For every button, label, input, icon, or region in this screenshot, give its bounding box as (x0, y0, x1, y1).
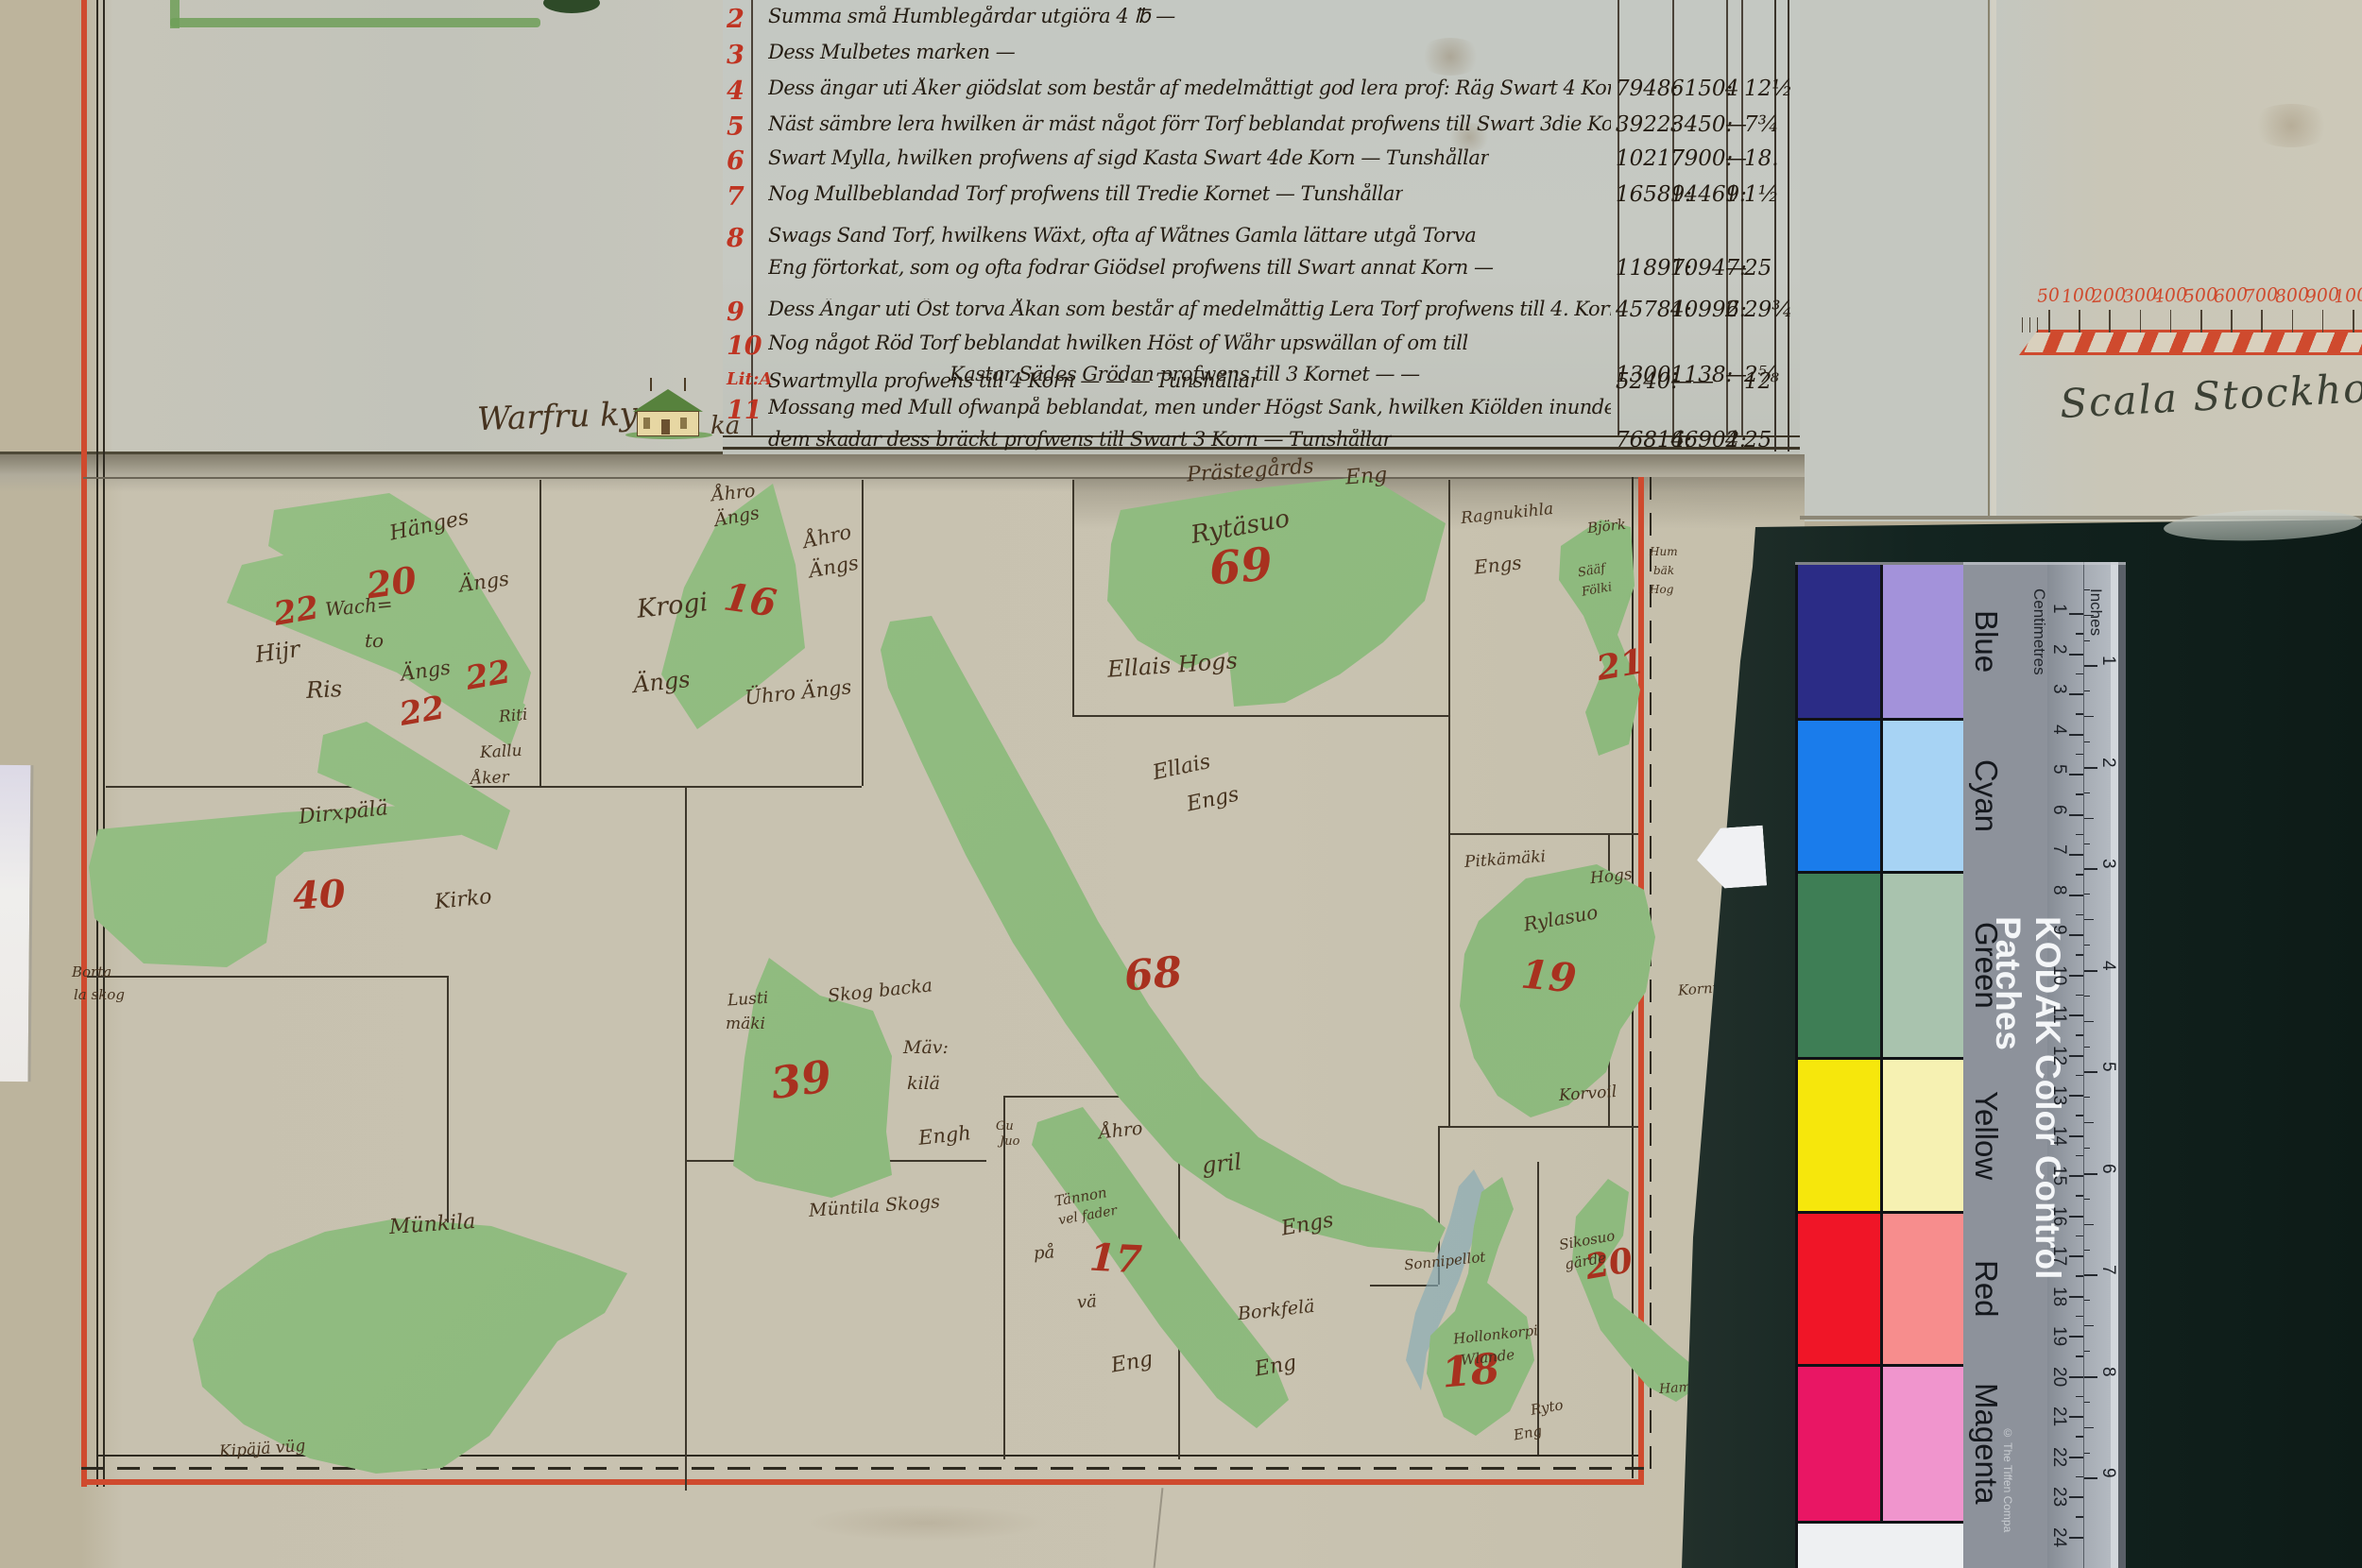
cm-number: 8 (2048, 885, 2069, 917)
color-patch-light (1883, 1367, 1963, 1521)
cm-number: 5 (2048, 764, 2069, 796)
scale-tick (2079, 310, 2080, 332)
cm-number: 4 (2048, 724, 2069, 757)
inch-sub-tick (2084, 1224, 2094, 1225)
cm-major-tick (2069, 654, 2083, 656)
cm-number: 12 (2048, 1046, 2069, 1078)
cm-minor-tick (2076, 633, 2083, 635)
inch-number: 5 (2097, 1062, 2118, 1094)
cm-number: 18 (2048, 1287, 2069, 1319)
cm-minor-tick (2076, 874, 2083, 876)
cm-major-tick (2069, 1175, 2083, 1177)
color-patch-strong (1798, 874, 1880, 1057)
scanned-historical-map: 2022222216692140396819171820HängesÄngsWa… (0, 0, 2362, 1568)
cm-major-tick (2069, 895, 2083, 896)
cm-number: 16 (2048, 1206, 2069, 1238)
cm-number: 9 (2048, 925, 2069, 957)
color-patch-label-box: Magenta (1965, 1367, 2007, 1521)
scale-tick (2292, 310, 2294, 332)
ruler-edge-shade (2118, 562, 2126, 1568)
cm-minor-tick (2076, 1355, 2083, 1357)
color-patch-strong (1798, 1214, 1880, 1364)
inch-major-tick (2084, 1071, 2097, 1073)
cm-minor-tick (2076, 995, 2083, 997)
cm-number: 23 (2048, 1487, 2069, 1519)
inch-number: 1 (2097, 656, 2118, 688)
color-patch-label: Magenta (1968, 1383, 2004, 1504)
kodak-card: Centimetres Inches KODAK Color Control P… (1795, 562, 2126, 1568)
cm-number: 2 (2048, 644, 2069, 676)
inch-number: 2 (2097, 758, 2118, 790)
cm-minor-tick (2076, 713, 2083, 715)
inch-sub-tick (2084, 1250, 2090, 1251)
cm-major-tick (2069, 1296, 2083, 1298)
cm-minor-tick (2076, 1075, 2083, 1077)
scale-tick (2048, 310, 2050, 332)
cm-number: 1 (2048, 604, 2069, 636)
cm-number: 6 (2048, 805, 2069, 837)
cm-minor-tick (2076, 1436, 2083, 1438)
cm-major-tick (2069, 934, 2083, 936)
color-patch-label: Blue (1968, 610, 2004, 673)
color-patch-label: Cyan (1968, 759, 2004, 832)
inch-sub-tick (2084, 1047, 2090, 1048)
scale-title: Scala Stockholmia (2059, 364, 2362, 424)
cm-minor-tick (2076, 1275, 2083, 1277)
cm-major-tick (2069, 693, 2083, 695)
cm-minor-tick (2076, 673, 2083, 675)
inch-major-tick (2084, 1477, 2097, 1479)
inch-number: 7 (2097, 1265, 2118, 1297)
cm-number: 22 (2048, 1447, 2069, 1479)
scale-tick (2261, 310, 2263, 332)
color-patch-strong (1798, 1367, 1880, 1521)
color-patch-strong (1798, 565, 1880, 718)
cm-number: 20 (2048, 1367, 2069, 1399)
cm-minor-tick (2076, 834, 2083, 836)
scale-bar-hatch (2019, 330, 2362, 355)
cm-number: 7 (2048, 844, 2069, 877)
cm-minor-tick (2076, 1115, 2083, 1116)
cm-minor-tick (2076, 1516, 2083, 1518)
inch-sub-tick (2084, 1300, 2090, 1301)
inch-sub-tick (2084, 818, 2094, 819)
ruler-inch-label: Inches (2086, 588, 2105, 636)
inch-sub-tick (2084, 741, 2090, 742)
inch-number: 9 (2097, 1468, 2118, 1500)
inch-major-tick (2084, 1274, 2097, 1276)
inch-sub-tick (2084, 919, 2094, 920)
scale-minor-tick (2029, 317, 2030, 332)
inch-sub-tick (2084, 690, 2090, 691)
cm-minor-tick (2076, 1476, 2083, 1478)
inch-major-tick (2084, 1376, 2097, 1378)
scale-minor-tick (2022, 317, 2023, 332)
cm-number: 10 (2048, 965, 2069, 997)
inch-sub-tick (2084, 1148, 2090, 1149)
cm-major-tick (2069, 734, 2083, 736)
cm-major-tick (2069, 1496, 2083, 1498)
cm-number: 13 (2048, 1085, 2069, 1117)
cm-major-tick (2069, 1135, 2083, 1137)
cm-number: 19 (2048, 1326, 2069, 1358)
cm-number: 17 (2048, 1246, 2069, 1278)
color-patch-light (1883, 1214, 1963, 1364)
color-patch-label: Green (1968, 922, 2004, 1009)
inch-sub-tick (2084, 1199, 2090, 1200)
cm-major-tick (2069, 1216, 2083, 1218)
inch-sub-tick (2084, 1097, 2090, 1098)
inch-sub-tick (2084, 716, 2094, 717)
color-patch-label: Yellow (1968, 1091, 2004, 1180)
color-patch-light (1883, 565, 1963, 718)
inch-sub-tick (2084, 589, 2090, 590)
inch-major-tick (2084, 868, 2097, 870)
cm-major-tick (2069, 1336, 2083, 1338)
cm-major-tick (2069, 854, 2083, 856)
color-patch-label: Red (1968, 1260, 2004, 1318)
color-patch-label-box: Yellow (1965, 1060, 2007, 1211)
scale-tick-label: 1000 (2333, 284, 2362, 308)
color-patch-label-box: Green (1965, 874, 2007, 1057)
inch-number: 3 (2097, 859, 2118, 891)
inch-sub-tick (2084, 894, 2090, 895)
cm-minor-tick (2076, 1396, 2083, 1398)
cm-major-tick (2069, 975, 2083, 977)
cm-major-tick (2069, 1457, 2083, 1458)
inch-sub-tick (2084, 1351, 2090, 1352)
cm-major-tick (2069, 1537, 2083, 1539)
color-patch-label-box: Red (1965, 1214, 2007, 1364)
scale-tick (2109, 310, 2111, 332)
inch-major-tick (2084, 1173, 2097, 1175)
ruler-center-line (2083, 562, 2084, 1568)
cm-number: 24 (2048, 1527, 2069, 1559)
cm-number: 21 (2048, 1406, 2069, 1439)
cm-minor-tick (2076, 1316, 2083, 1318)
inch-major-tick (2084, 665, 2097, 667)
color-patch-strong (1798, 1060, 1880, 1211)
inch-sub-tick (2084, 1453, 2090, 1454)
cm-major-tick (2069, 1055, 2083, 1057)
scale-tick (2200, 310, 2202, 332)
cm-major-tick (2069, 1376, 2083, 1378)
cm-major-tick (2069, 774, 2083, 775)
scale-tick (2322, 310, 2324, 332)
color-patch-light (1883, 1060, 1963, 1211)
inch-sub-tick (2084, 640, 2090, 641)
scale-tick (2140, 310, 2142, 332)
color-patch-light (1883, 721, 1963, 871)
inch-sub-tick (2084, 1122, 2094, 1123)
inch-number: 6 (2097, 1164, 2118, 1196)
cm-major-tick (2069, 1416, 2083, 1418)
color-patch-white (1798, 1524, 1963, 1568)
inch-sub-tick (2084, 1021, 2094, 1022)
cm-major-tick (2069, 1095, 2083, 1097)
color-patch-label-box: Blue (1965, 565, 2007, 718)
cm-minor-tick (2076, 793, 2083, 795)
white-paper-strip (0, 765, 33, 1082)
inch-major-tick (2084, 970, 2097, 972)
inch-sub-tick (2084, 1427, 2094, 1428)
cm-minor-tick (2076, 954, 2083, 956)
inch-sub-tick (2084, 945, 2090, 946)
inch-sub-tick (2084, 1402, 2090, 1403)
inch-number: 4 (2097, 961, 2118, 993)
cm-minor-tick (2076, 914, 2083, 916)
cm-number: 3 (2048, 684, 2069, 716)
cm-major-tick (2069, 814, 2083, 816)
scale-tick (2170, 310, 2172, 332)
inch-sub-tick (2084, 615, 2094, 616)
cm-minor-tick (2076, 1034, 2083, 1036)
inch-major-tick (2084, 767, 2097, 769)
scale-tick (2353, 310, 2354, 332)
cm-minor-tick (2076, 1236, 2083, 1237)
cm-major-tick (2069, 1255, 2083, 1257)
cm-minor-tick (2076, 754, 2083, 756)
color-patch-light (1883, 874, 1963, 1057)
cm-number: 14 (2048, 1126, 2069, 1158)
color-patch-label-box: Cyan (1965, 721, 2007, 871)
color-patch-strong (1798, 721, 1880, 871)
inch-number: 8 (2097, 1367, 2118, 1399)
cm-number: 11 (2048, 1005, 2069, 1037)
scale-minor-tick (2037, 317, 2038, 332)
inch-sub-tick (2084, 1325, 2094, 1326)
cm-minor-tick (2076, 1195, 2083, 1197)
inch-sub-tick (2084, 844, 2090, 844)
cm-minor-tick (2076, 1155, 2083, 1157)
cm-number: 15 (2048, 1166, 2069, 1198)
ruler-cm-label: Centimetres (2029, 588, 2048, 675)
inch-sub-tick (2084, 996, 2090, 997)
scale-tick (2231, 310, 2233, 332)
cm-major-tick (2069, 1014, 2083, 1016)
inch-sub-tick (2084, 793, 2090, 793)
cm-major-tick (2069, 613, 2083, 615)
